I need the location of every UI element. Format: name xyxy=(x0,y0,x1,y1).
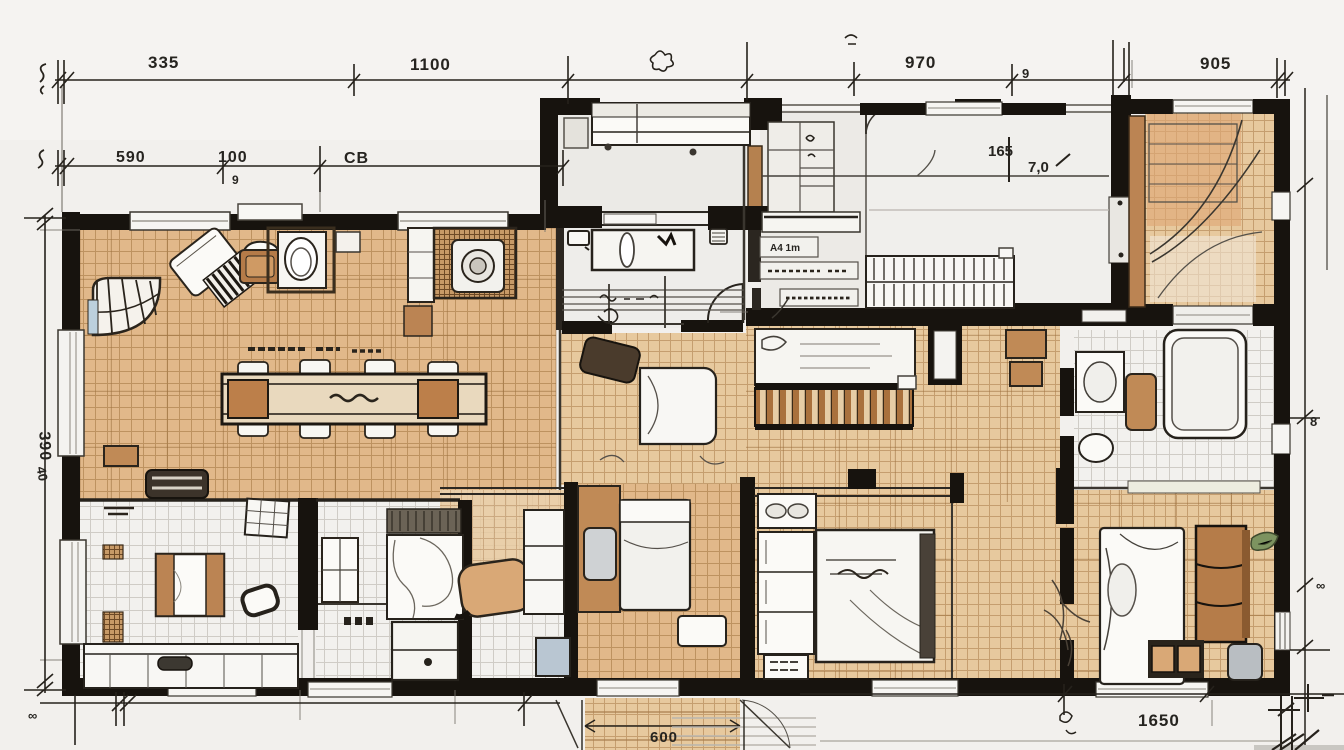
svg-text:40: 40 xyxy=(34,465,51,482)
svg-text:905: 905 xyxy=(1200,54,1231,73)
svg-text:9: 9 xyxy=(1022,66,1029,81)
svg-text:7,0: 7,0 xyxy=(1028,159,1049,176)
svg-text:970: 970 xyxy=(905,53,936,72)
svg-text:590: 590 xyxy=(116,149,146,166)
svg-text:100: 100 xyxy=(218,149,248,166)
svg-text:600: 600 xyxy=(650,729,678,746)
svg-text:CB: CB xyxy=(344,150,369,167)
svg-text:∞: ∞ xyxy=(28,708,37,723)
svg-text:390: 390 xyxy=(35,431,53,461)
svg-text:165: 165 xyxy=(988,143,1013,160)
svg-text:1100: 1100 xyxy=(410,55,451,74)
svg-text:1650: 1650 xyxy=(1138,711,1180,730)
svg-text:A4 1m: A4 1m xyxy=(770,243,800,254)
svg-text:8: 8 xyxy=(1310,414,1317,429)
svg-text:335: 335 xyxy=(148,53,179,72)
svg-text:∞: ∞ xyxy=(1316,578,1325,593)
svg-text:9: 9 xyxy=(232,173,239,187)
